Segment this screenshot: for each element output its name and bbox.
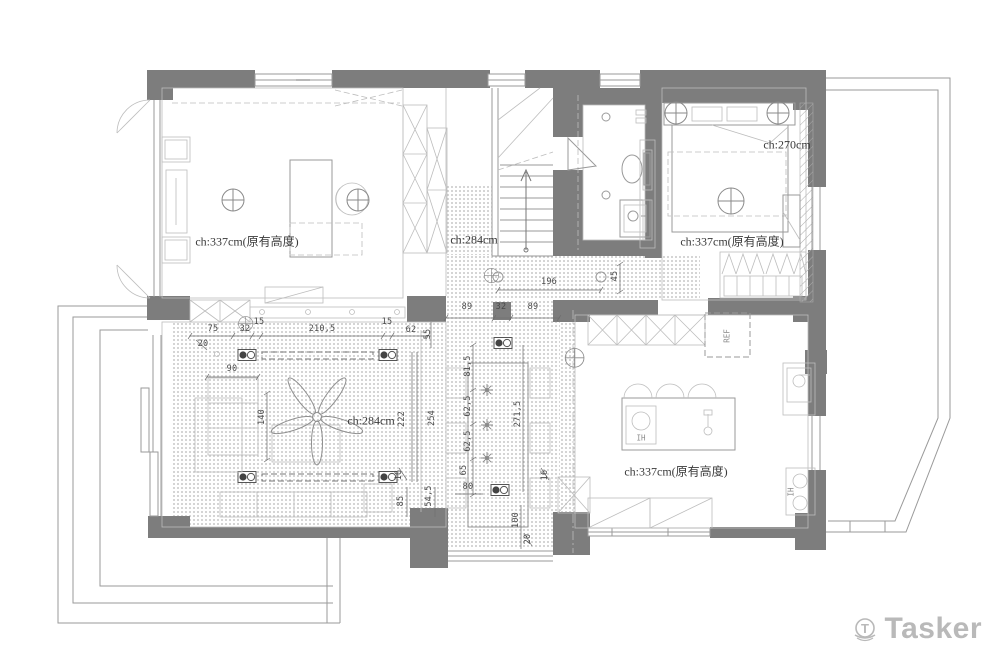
light-niche — [250, 307, 405, 318]
lower-cabinets-icon — [588, 498, 712, 528]
rug-outline — [668, 152, 786, 216]
island-faucet-icon — [704, 427, 712, 435]
floor-plan-drawing — [0, 0, 1000, 654]
ceiling-fan-light-icon — [718, 188, 744, 214]
spotlight-pair-icon — [379, 350, 397, 361]
spotlight-pair-icon — [238, 350, 256, 361]
corner-cabinet-icon — [558, 477, 590, 513]
spotlight-pair-icon — [491, 485, 509, 496]
downlight-icon — [602, 191, 610, 199]
sofa-icon — [208, 378, 258, 455]
door-swing-arcs — [117, 100, 150, 298]
spotlight-pair-icon — [379, 472, 397, 483]
closet-shelving-icon — [403, 105, 447, 253]
track-light — [262, 474, 373, 481]
floor-outlet-icon — [239, 317, 253, 331]
pendant-light-icon — [481, 452, 493, 464]
bedside-desk — [783, 195, 800, 247]
pendant-light-icon — [481, 419, 493, 431]
living-room-furniture — [190, 300, 421, 517]
top-left-room-furniture — [162, 90, 447, 303]
staircase — [492, 88, 553, 256]
toilet-icon — [622, 155, 642, 183]
wall-hatch-strip — [800, 103, 813, 302]
ceiling-light-icon — [222, 189, 244, 211]
ceiling-light-icon — [665, 102, 687, 124]
coffee-table-icon — [272, 425, 340, 462]
svg-text:T: T — [862, 621, 870, 636]
tv-console-icon — [220, 492, 367, 517]
bedroom-furniture — [640, 102, 806, 298]
track-light — [262, 352, 373, 359]
table-icon — [290, 160, 332, 257]
bathroom-door-swing — [568, 138, 596, 170]
downlight-icon — [596, 272, 606, 282]
floor-plan-canvas: ch:337cm(原有高度)ch:284cmch:284cmch:270cmch… — [0, 0, 1000, 654]
ceiling-light-icon — [484, 268, 498, 282]
ceiling-light-icon — [347, 189, 369, 211]
upper-cabinets-icon — [588, 315, 705, 345]
refrigerator-outline — [705, 313, 750, 357]
dining-table-icon — [468, 363, 528, 527]
right-terrace-outline — [826, 78, 950, 532]
watermark: T Tasker — [850, 612, 982, 646]
ih-cooktop-icon — [632, 412, 650, 430]
kitchen-island-icon — [622, 384, 735, 450]
wardrobe-hangers-icon — [720, 252, 806, 298]
brand-text: Tasker — [884, 612, 982, 646]
left-terrace-outline — [58, 306, 340, 623]
ceiling-light-icon — [767, 102, 789, 124]
tasker-logo-icon: T — [850, 614, 880, 644]
spotlight-pair-icon — [494, 338, 512, 349]
downlight-icon — [602, 113, 610, 121]
spotlight-pair-icon — [238, 472, 256, 483]
ceiling-fan-icon — [270, 375, 365, 465]
pendant-light-icon — [481, 384, 493, 396]
ceiling-light-icon — [565, 349, 584, 368]
